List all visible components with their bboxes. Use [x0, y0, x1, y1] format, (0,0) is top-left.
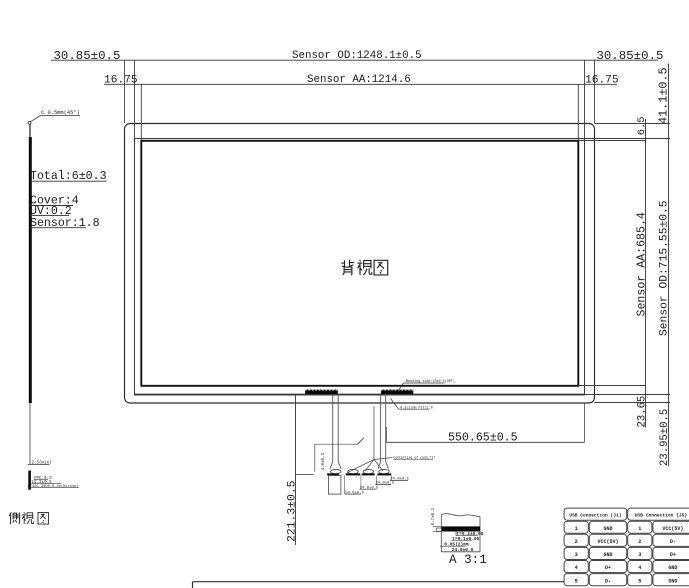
svg-text:GND: GND: [668, 565, 677, 571]
svg-text:Sensor:1.8: Sensor:1.8: [30, 217, 100, 230]
svg-text:GND: GND: [668, 578, 677, 584]
svg-text:DF40C-30DS-0.4V(Hirose): DF40C-30DS-0.4V(Hirose): [28, 484, 79, 489]
svg-text:Centerline of conn."1": Centerline of conn."1": [393, 455, 435, 459]
svg-text:2: 2: [575, 539, 578, 545]
svg-text:2: 2: [638, 539, 641, 545]
svg-text:0.7±0.1: 0.7±0.1: [432, 507, 436, 525]
svg-text:550.65±0.5: 550.65±0.5: [448, 431, 518, 444]
svg-text:Sensor AA:685.4: Sensor AA:685.4: [635, 212, 648, 316]
svg-text:1: 1: [638, 526, 641, 532]
svg-text:Bonding side:10±0.5(OPT): Bonding side:10±0.5(OPT): [406, 379, 455, 384]
svg-text:24.0±0.5: 24.0±0.5: [360, 486, 379, 490]
svg-text:3: 3: [638, 552, 641, 558]
svg-text:4: 4: [638, 565, 641, 571]
svg-text:4: 4: [575, 565, 578, 571]
svg-text:16.75: 16.75: [585, 74, 619, 86]
svg-text:t=0.1±0.05: t=0.1±0.05: [452, 536, 479, 542]
svg-text:D-: D-: [670, 539, 676, 545]
svg-text:D+: D+: [670, 552, 676, 558]
svg-text:5: 5: [638, 578, 641, 584]
svg-text:2.5(min): 2.5(min): [32, 461, 52, 466]
svg-text:1: 1: [575, 526, 578, 532]
svg-text:16.75: 16.75: [104, 74, 138, 86]
svg-text:C 0.5mm(45°): C 0.5mm(45°): [41, 110, 80, 116]
svg-text:6.5: 6.5: [636, 116, 648, 135]
svg-text:VCC(5V): VCC(5V): [597, 539, 618, 545]
svg-text:30.85±0.5: 30.85±0.5: [54, 49, 121, 63]
svg-text:D-: D-: [605, 578, 611, 584]
svg-text:USB Connection (J5): USB Connection (J5): [635, 513, 687, 519]
svg-text:221.3±0.5: 221.3±0.5: [287, 480, 299, 542]
svg-text:Sensor OD:1248.1±0.5: Sensor OD:1248.1±0.5: [292, 50, 422, 62]
svg-text:GND: GND: [603, 552, 612, 558]
svg-text:23.95±0.5: 23.95±0.5: [659, 409, 671, 466]
svg-text:USB Connection (J1): USB Connection (J1): [569, 513, 621, 519]
svg-text:D+: D+: [605, 565, 611, 571]
svg-text:54.0±0.5: 54.0±0.5: [345, 491, 364, 495]
svg-text:3: 3: [575, 552, 578, 558]
svg-text:A 3:1: A 3:1: [449, 553, 487, 567]
svg-text:Sensor AA:1214.6: Sensor AA:1214.6: [307, 74, 411, 86]
svg-text:5: 5: [575, 578, 578, 584]
svg-text:4.0±0.3: 4.0±0.3: [322, 452, 326, 470]
svg-text:23.65: 23.65: [637, 396, 649, 428]
svg-text:41.1±0.5: 41.1±0.5: [657, 67, 671, 124]
svg-text:Sensor OD:715.55±0.5: Sensor OD:715.55±0.5: [659, 200, 671, 336]
svg-text:VCC(5V): VCC(5V): [662, 526, 683, 532]
svg-text:30.85±0.5: 30.85±0.5: [597, 49, 664, 63]
svg-text:0.3(2)mm P(T)1.0: 0.3(2)mm P(T)1.0: [400, 405, 433, 410]
svg-text:GND: GND: [603, 526, 612, 532]
svg-text:24.0±0.5: 24.0±0.5: [452, 547, 474, 553]
svg-text:24.0±0.5: 24.0±0.5: [376, 482, 395, 486]
